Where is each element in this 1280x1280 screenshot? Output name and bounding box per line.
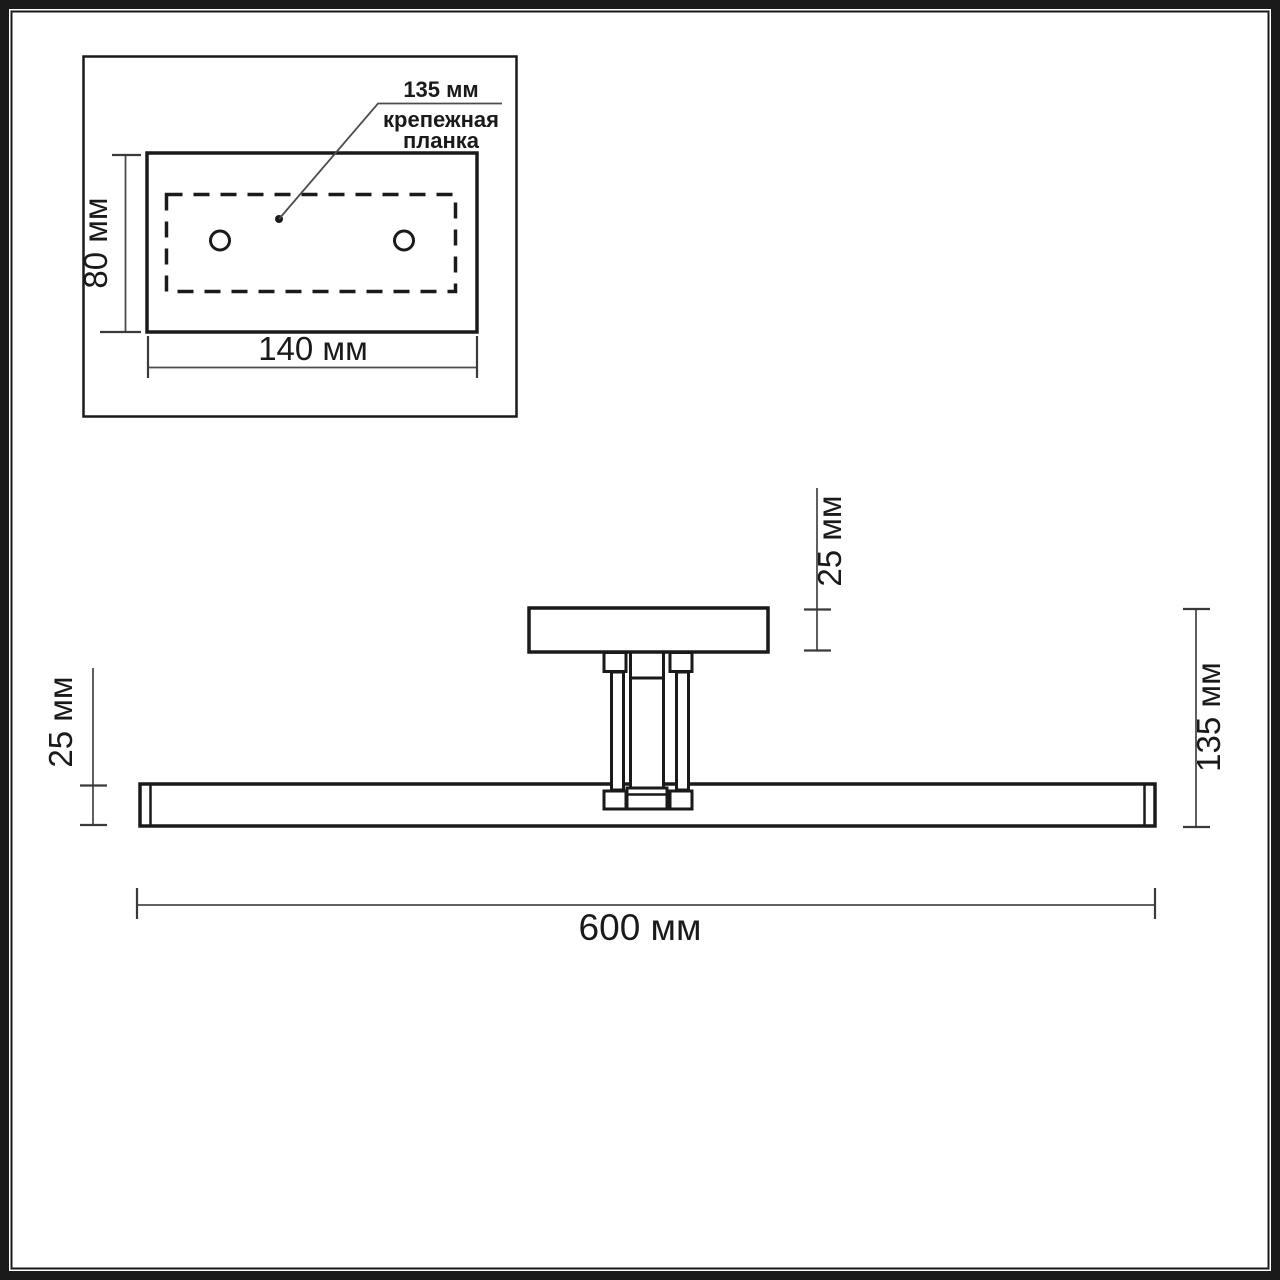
top-bracket-left [604, 653, 626, 672]
hole-spacing-label: 135 мм [403, 77, 478, 102]
central-column [631, 652, 664, 788]
bar-thickness-label: 25 мм [42, 676, 79, 767]
technical-drawing-page: 135 мм крепежная планка 80 мм 140 мм [0, 0, 1280, 1280]
bottom-foot-left [604, 791, 626, 809]
wall-backplate [529, 608, 768, 652]
suspension-rod-left [612, 672, 624, 790]
lamp-dimension-drawing: 135 мм крепежная планка 80 мм 140 мм [0, 0, 1280, 1280]
backplate-depth-label: 25 мм [811, 495, 848, 586]
screw-hole-left [211, 231, 230, 250]
caption-line2: планка [403, 128, 480, 153]
plate-width-label: 140 мм [258, 330, 368, 367]
suspension-rod-right [677, 672, 689, 790]
bottom-foot-center [627, 788, 667, 809]
dimension-bar-25mm [80, 668, 107, 826]
length-label: 600 мм [579, 907, 702, 948]
plate-height-label: 80 мм [77, 197, 114, 288]
main-view-lamp: 25 мм 25 мм 135 мм 600 мм [42, 488, 1227, 948]
detail-view-mounting-plate: 135 мм крепежная планка 80 мм 140 мм [77, 57, 517, 417]
overall-depth-label: 135 мм [1190, 662, 1227, 772]
screw-hole-right [395, 231, 414, 250]
bottom-foot-right [670, 791, 692, 809]
top-bracket-right [670, 653, 692, 672]
